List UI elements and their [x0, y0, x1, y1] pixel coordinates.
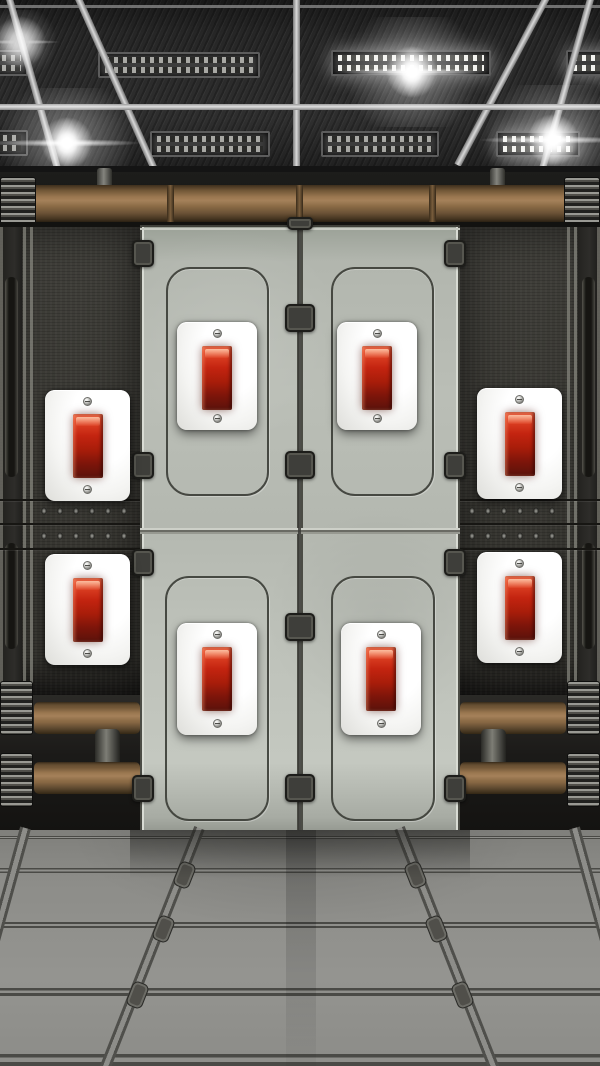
- switch-plate: [477, 552, 562, 663]
- screw-icon: [515, 395, 524, 404]
- switch-toggle-down: [366, 647, 396, 711]
- switch-door-top-left[interactable]: [177, 322, 257, 430]
- switch-wall-bottom-right[interactable]: [477, 552, 562, 663]
- switch-plate: [337, 322, 417, 430]
- screw-icon: [213, 414, 222, 423]
- switch-plate: [45, 390, 130, 501]
- switch-door-bottom-right[interactable]: [341, 623, 421, 735]
- screw-icon: [377, 630, 386, 639]
- screw-icon: [515, 647, 524, 656]
- toggle-highlight: [205, 650, 229, 659]
- screw-icon: [515, 483, 524, 492]
- switch-door-bottom-left[interactable]: [177, 623, 257, 735]
- switch-toggle-down: [202, 647, 232, 711]
- screw-icon: [83, 397, 92, 406]
- switch-wall-top-right[interactable]: [477, 388, 562, 499]
- switch-toggle-down: [202, 346, 232, 410]
- screw-icon: [373, 414, 382, 423]
- switch-wall-top-left[interactable]: [45, 390, 130, 501]
- switch-plate: [341, 623, 421, 735]
- switch-door-top-right[interactable]: [337, 322, 417, 430]
- switch-toggle-down: [362, 346, 392, 410]
- toggle-highlight: [369, 650, 393, 659]
- screw-icon: [83, 561, 92, 570]
- toggle-highlight: [508, 579, 532, 588]
- switch-toggle-down: [73, 414, 103, 478]
- switch-toggle-down: [505, 412, 535, 476]
- toggle-highlight: [508, 415, 532, 424]
- screw-icon: [377, 719, 386, 728]
- toggle-highlight: [205, 349, 229, 358]
- toggle-highlight: [365, 349, 389, 358]
- switch-plate: [177, 322, 257, 430]
- switch-toggle-down: [505, 576, 535, 640]
- screw-icon: [213, 329, 222, 338]
- switch-toggle-down: [73, 578, 103, 642]
- switch-plate: [477, 388, 562, 499]
- screw-icon: [373, 329, 382, 338]
- toggle-highlight: [76, 581, 100, 590]
- game-scene: [0, 0, 600, 1066]
- switch-layer: [0, 0, 600, 1066]
- switch-wall-bottom-left[interactable]: [45, 554, 130, 665]
- screw-icon: [515, 559, 524, 568]
- screw-icon: [83, 649, 92, 658]
- screw-icon: [213, 630, 222, 639]
- switch-plate: [45, 554, 130, 665]
- toggle-highlight: [76, 417, 100, 426]
- screw-icon: [83, 485, 92, 494]
- switch-plate: [177, 623, 257, 735]
- screw-icon: [213, 719, 222, 728]
